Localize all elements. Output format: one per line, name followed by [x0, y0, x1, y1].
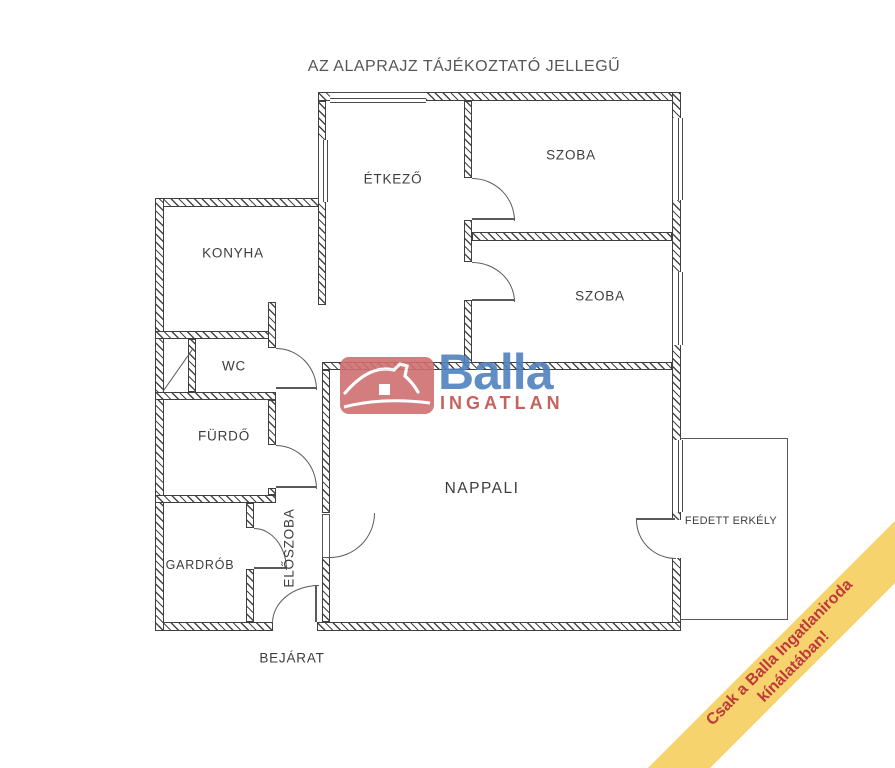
door-arc-room2	[472, 262, 515, 302]
door-leaf-livingroom	[322, 514, 330, 558]
wall-livingroom-left-lower	[322, 557, 330, 622]
door-leaf-wc	[276, 387, 316, 389]
door-arc-entrance	[272, 585, 319, 623]
door-leaf-entrance	[315, 585, 317, 622]
room-label-wc: WC	[222, 359, 246, 374]
room-label-eloszoba: ELŐSZOBA	[282, 508, 297, 587]
room-label-furdo: FÜRDŐ	[198, 429, 250, 444]
window-room2	[672, 272, 683, 345]
wall-dining-left	[318, 101, 326, 305]
room-label-szoba-1: SZOBA	[546, 148, 596, 163]
room-label-nappali: NAPPALI	[445, 480, 520, 498]
balla-ingatlan-logo: Balla INGATLAN	[338, 352, 570, 416]
window-dining-top	[330, 92, 426, 103]
wall-kitchen-top	[155, 198, 326, 207]
door-arc-balcony	[636, 520, 676, 559]
door-arc-room1	[472, 178, 515, 221]
door-arc-bath	[276, 445, 317, 489]
logo-house-icon	[340, 357, 434, 414]
wall-left	[155, 198, 164, 631]
wall-bottom-right	[317, 622, 681, 631]
window-room1	[672, 118, 683, 200]
room-label-fedett-erkely: FEDETT ERKÉLY	[685, 515, 777, 527]
wall-dining-room1-upper	[464, 101, 472, 178]
wall-dining-room-mid	[464, 220, 472, 262]
wall-wardrobe-right-lower	[246, 569, 254, 622]
door-leaf-balcony	[636, 518, 675, 520]
window-dining-left	[318, 140, 328, 202]
wall-livingroom-left-upper	[322, 370, 330, 513]
wall-bath-right-upper	[268, 400, 276, 445]
wall-wardrobe-right-upper	[246, 503, 254, 528]
door-leaf-room2	[472, 299, 515, 301]
door-arc-livingroom	[330, 513, 375, 558]
wall-wc-bottom	[155, 392, 276, 400]
door-arc-wc	[276, 348, 317, 390]
room-label-konyha: KONYHA	[202, 246, 264, 261]
wall-room-divider	[472, 232, 672, 241]
room-label-etkezo: ÉTKEZŐ	[364, 172, 423, 187]
wall-wc-right-stub	[268, 302, 276, 348]
balcony-outline	[680, 438, 788, 620]
room-label-szoba-2: SZOBA	[575, 289, 625, 304]
plan-disclaimer-title: AZ ALAPRAJZ TÁJÉKOZTATÓ JELLEGŰ	[308, 58, 620, 76]
wall-bath-right-lower	[268, 488, 276, 495]
entrance-label: BEJÁRAT	[259, 651, 324, 666]
door-leaf-bath	[276, 486, 316, 488]
door-leaf-room1	[472, 218, 515, 220]
floor-plan: AZ ALAPRAJZ TÁJÉKOZTATÓ JELLEGŰ É	[0, 0, 895, 768]
wall-bottom-left	[155, 622, 273, 631]
logo-tagline-text: INGATLAN	[440, 393, 564, 414]
wall-kitchen-bottom	[155, 331, 276, 339]
room-label-gardrob: GARDRÓB	[166, 558, 235, 572]
wall-bath-bottom	[155, 495, 276, 503]
